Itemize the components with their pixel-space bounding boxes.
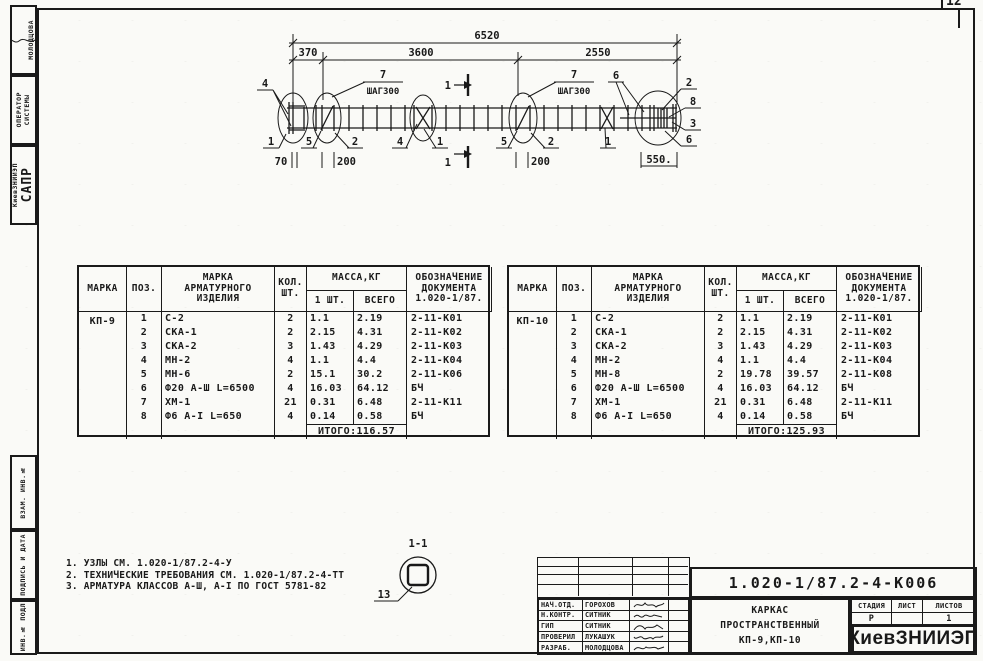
table-cell: 15.1 bbox=[307, 368, 354, 382]
table-filler bbox=[557, 424, 592, 439]
table-cell: 3 bbox=[275, 340, 307, 354]
marka-value: КП-9 bbox=[79, 312, 127, 439]
sig-date bbox=[669, 632, 688, 643]
table-cell: 6 bbox=[127, 382, 162, 396]
table-cell: 16.03 bbox=[307, 382, 354, 396]
svg-text:4: 4 bbox=[397, 136, 403, 148]
doc-number-cell: 1.020-1/87.2-4-К006 bbox=[690, 567, 977, 598]
sig-role: ПРОВЕРИЛ bbox=[539, 632, 583, 643]
svg-text:ШАГ300: ШАГ300 bbox=[558, 87, 591, 97]
col-header-marka: МАРКА bbox=[509, 267, 557, 312]
table-cell: 2 bbox=[705, 368, 737, 382]
table-cell: 1.1 bbox=[737, 354, 784, 368]
table-cell: ХМ-1 bbox=[162, 396, 275, 410]
table-cell: 2-11-К02 bbox=[837, 326, 922, 340]
svg-text:1-1: 1-1 bbox=[409, 538, 428, 550]
table-cell: 0.14 bbox=[307, 410, 354, 424]
table-cell: БЧ bbox=[407, 382, 492, 396]
table-cell: Ф20 А-Ш L=6500 bbox=[162, 382, 275, 396]
svg-text:2550: 2550 bbox=[585, 47, 610, 59]
table-cell: 64.12 bbox=[354, 382, 407, 396]
table-cell: 2-11-К11 bbox=[407, 396, 492, 410]
table-cell: 16.03 bbox=[737, 382, 784, 396]
table-cell: 2-11-К01 bbox=[837, 312, 922, 326]
sheets-value: 1 bbox=[923, 613, 975, 624]
table-cell: 1.43 bbox=[737, 340, 784, 354]
corner-divider bbox=[958, 8, 960, 28]
table-cell: 2-11-К03 bbox=[837, 340, 922, 354]
table-cell: 1.1 bbox=[307, 312, 354, 326]
col-header-qty: КОЛ. ШТ. bbox=[705, 267, 737, 312]
organization-name: КиевЗНИИЭП bbox=[852, 625, 975, 653]
table-cell: 6.48 bbox=[354, 396, 407, 410]
table-cell: 2-11-К06 bbox=[407, 368, 492, 382]
table-cell: 0.14 bbox=[737, 410, 784, 424]
table-filler bbox=[275, 424, 307, 439]
table-cell: МН-8 bbox=[592, 368, 705, 382]
table-total: ИТОГО:125.93 bbox=[737, 424, 837, 439]
table-cell: 21 bbox=[275, 396, 307, 410]
col-header-doc: ОБОЗНАЧЕНИЕ ДОКУМЕНТА 1.020-1/87. bbox=[837, 267, 922, 312]
table-cell: 4.31 bbox=[354, 326, 407, 340]
table-cell: 0.58 bbox=[784, 410, 837, 424]
table-cell: 2-11-К08 bbox=[837, 368, 922, 382]
table-cell: 2.19 bbox=[784, 312, 837, 326]
sheet-label: ЛИСТ bbox=[892, 600, 923, 612]
table-cell: 1 bbox=[127, 312, 162, 326]
sig-role: РАЗРАБ. bbox=[539, 642, 583, 653]
table-cell: 2 bbox=[705, 312, 737, 326]
table-cell: 2-11-К04 bbox=[837, 354, 922, 368]
bottom-dimensions: 70 200 200 550. bbox=[275, 152, 677, 168]
table-filler bbox=[705, 424, 737, 439]
col-header-all: ВСЕГО bbox=[354, 291, 407, 312]
spec-table-kp10: МАРКА ПОЗ. МАРКА АРМАТУРНОГО ИЗДЕЛИЯ КОЛ… bbox=[507, 265, 920, 437]
table-cell: 3 bbox=[127, 340, 162, 354]
corner-divider bbox=[941, 0, 943, 9]
signature bbox=[630, 611, 669, 622]
table-cell: 2 bbox=[705, 326, 737, 340]
svg-text:1: 1 bbox=[268, 136, 274, 148]
sig-date bbox=[669, 611, 688, 622]
svg-text:5: 5 bbox=[306, 136, 312, 148]
table-cell: 6 bbox=[557, 382, 592, 396]
table-total: ИТОГО:116.57 bbox=[307, 424, 407, 439]
signature bbox=[10, 33, 37, 47]
sig-name: ГОРОХОВ bbox=[583, 600, 630, 611]
table-cell: С-2 bbox=[162, 312, 275, 326]
table-cell: БЧ bbox=[407, 410, 492, 424]
table-cell: СКА-2 bbox=[592, 340, 705, 354]
note-line: 2. ТЕХНИЧЕСКИЕ ТРЕБОВАНИЯ СМ. 1.020-1/87… bbox=[66, 570, 406, 582]
col-header-one: 1 ШТ. bbox=[737, 291, 784, 312]
table-cell: 8 bbox=[127, 410, 162, 424]
col-header-one: 1 ШТ. bbox=[307, 291, 354, 312]
svg-text:6520: 6520 bbox=[474, 30, 499, 42]
table-cell: 1 bbox=[557, 312, 592, 326]
margin-field-podpis: ПОДПИСЬ И ДАТА bbox=[10, 530, 37, 600]
drawing-sheet: 12 МОЛОДЦОВА ОПЕРАТОР СИСТЕМЫ САПР КиевЗ… bbox=[0, 0, 983, 661]
signature bbox=[630, 642, 669, 653]
stage-sheet-section: СТАДИЯ ЛИСТ ЛИСТОВ Р 1 КиевЗНИИЭП bbox=[850, 598, 977, 655]
beam-body bbox=[287, 102, 677, 134]
margin-field-inv: ИНВ.№ ПОДЛ bbox=[10, 600, 37, 655]
sig-name: СИТНИК bbox=[583, 621, 630, 632]
sig-name: МОЛОДЦОВА bbox=[583, 642, 630, 653]
table-cell: МН-2 bbox=[162, 354, 275, 368]
svg-text:1: 1 bbox=[445, 157, 451, 169]
svg-text:1: 1 bbox=[437, 136, 443, 148]
table-cell: 1.1 bbox=[737, 312, 784, 326]
svg-text:200: 200 bbox=[337, 156, 356, 168]
table-filler bbox=[592, 424, 705, 439]
table-cell: 2.15 bbox=[737, 326, 784, 340]
sig-role: ГИП bbox=[539, 621, 583, 632]
margin-role-cell: ОПЕРАТОР СИСТЕМЫ bbox=[10, 75, 37, 145]
col-header-item: МАРКА АРМАТУРНОГО ИЗДЕЛИЯ bbox=[592, 267, 705, 312]
drawing-title: КАРКАС ПРОСТРАНСТВЕННЫЙ КП-9,КП-10 bbox=[690, 598, 850, 655]
table-cell: 2 bbox=[275, 312, 307, 326]
svg-text:8: 8 bbox=[690, 96, 696, 108]
table-cell: 1.1 bbox=[307, 354, 354, 368]
table-cell: 0.58 bbox=[354, 410, 407, 424]
svg-text:6: 6 bbox=[613, 70, 619, 82]
table-cell: 3 bbox=[705, 340, 737, 354]
table-cell: 2-11-К03 bbox=[407, 340, 492, 354]
svg-text:550.: 550. bbox=[646, 154, 671, 166]
table-cell: 4 bbox=[705, 382, 737, 396]
section-detail-1-1: 1-1 13 bbox=[360, 533, 470, 627]
sig-date bbox=[669, 642, 688, 653]
svg-text:370: 370 bbox=[299, 47, 318, 59]
table-cell: 0.31 bbox=[737, 396, 784, 410]
table-filler bbox=[127, 424, 162, 439]
table-cell: 4 bbox=[705, 410, 737, 424]
table-cell: 4.4 bbox=[784, 354, 837, 368]
table-cell: ХМ-1 bbox=[592, 396, 705, 410]
signature bbox=[630, 600, 669, 611]
table-cell: 2 bbox=[275, 368, 307, 382]
svg-text:200: 200 bbox=[531, 156, 550, 168]
svg-text:5: 5 bbox=[501, 136, 507, 148]
table-cell: 4 bbox=[705, 354, 737, 368]
table-cell: 39.57 bbox=[784, 368, 837, 382]
table-cell: СКА-2 bbox=[162, 340, 275, 354]
marka-value: КП-10 bbox=[509, 312, 557, 439]
svg-text:1: 1 bbox=[445, 80, 451, 92]
sheet-value bbox=[892, 613, 923, 624]
doc-number: 1.020-1/87.2-4-К006 bbox=[729, 574, 939, 592]
col-header-qty: КОЛ. ШТ. bbox=[275, 267, 307, 312]
table-cell: 4 bbox=[275, 354, 307, 368]
table-cell: 21 bbox=[705, 396, 737, 410]
sig-role: НАЧ.ОТД. bbox=[539, 600, 583, 611]
beam-elevation-drawing: 6520 370 3600 2550 bbox=[225, 18, 750, 192]
margin-designer-cell: МОЛОДЦОВА bbox=[10, 5, 37, 75]
table-cell: Ф20 А-Ш L=6500 bbox=[592, 382, 705, 396]
sig-name: СИТНИК bbox=[583, 611, 630, 622]
sig-date bbox=[669, 600, 688, 611]
svg-text:3600: 3600 bbox=[408, 47, 433, 59]
col-header-marka: МАРКА bbox=[79, 267, 127, 312]
table-cell: 5 bbox=[127, 368, 162, 382]
table-cell: 5 bbox=[557, 368, 592, 382]
dimension-lines: 6520 370 3600 2550 bbox=[289, 30, 681, 104]
stage-value: Р bbox=[852, 613, 892, 624]
table-cell: 8 bbox=[557, 410, 592, 424]
col-header-item: МАРКА АРМАТУРНОГО ИЗДЕЛИЯ bbox=[162, 267, 275, 312]
svg-text:ШАГ300: ШАГ300 bbox=[367, 87, 400, 97]
table-cell: 6.48 bbox=[784, 396, 837, 410]
table-cell: 4.4 bbox=[354, 354, 407, 368]
svg-text:6: 6 bbox=[686, 134, 692, 146]
table-cell: 0.31 bbox=[307, 396, 354, 410]
margin-org-big: САПР bbox=[20, 167, 36, 202]
table-cell: 2-11-К01 bbox=[407, 312, 492, 326]
note-line: 3. АРМАТУРА КЛАССОВ А-Ш, А-I ПО ГОСТ 578… bbox=[66, 581, 406, 593]
table-cell: 4 bbox=[127, 354, 162, 368]
table-cell: 30.2 bbox=[354, 368, 407, 382]
sig-role: Н.КОНТР. bbox=[539, 611, 583, 622]
table-cell: 64.12 bbox=[784, 382, 837, 396]
table-cell: 7 bbox=[557, 396, 592, 410]
margin-role-label: ОПЕРАТОР СИСТЕМЫ bbox=[15, 92, 31, 127]
signature bbox=[630, 621, 669, 632]
svg-text:7: 7 bbox=[571, 69, 577, 81]
margin-org-small: КиевЗНИИЭП bbox=[11, 163, 19, 207]
sig-date bbox=[669, 621, 688, 632]
table-cell: 2 bbox=[557, 326, 592, 340]
svg-text:2: 2 bbox=[686, 77, 692, 89]
svg-text:2: 2 bbox=[548, 136, 554, 148]
table-filler bbox=[162, 424, 275, 439]
sig-name: ЛУКАШУК bbox=[583, 632, 630, 643]
svg-text:3: 3 bbox=[690, 118, 696, 130]
table-cell: 2 bbox=[127, 326, 162, 340]
spec-table-kp9: МАРКА ПОЗ. МАРКА АРМАТУРНОГО ИЗДЕЛИЯ КОЛ… bbox=[77, 265, 490, 437]
table-cell: 4 bbox=[275, 410, 307, 424]
stage-label: СТАДИЯ bbox=[852, 600, 892, 612]
notes-block: 1. УЗЛЫ СМ. 1.020-1/87.2-4-У 2. ТЕХНИЧЕС… bbox=[66, 558, 406, 593]
sheets-label: ЛИСТОВ bbox=[923, 600, 975, 612]
table-cell: 4.29 bbox=[784, 340, 837, 354]
table-cell: 4 bbox=[275, 382, 307, 396]
svg-text:13: 13 bbox=[378, 589, 391, 601]
table-cell: 2.19 bbox=[354, 312, 407, 326]
signature-rows: НАЧ.ОТД. ГОРОХОВ Н.КОНТР. СИТНИК ГИП СИТ… bbox=[537, 598, 690, 655]
table-cell: СКА-1 bbox=[162, 326, 275, 340]
table-cell: 2 bbox=[275, 326, 307, 340]
table-cell: 2.15 bbox=[307, 326, 354, 340]
note-line: 1. УЗЛЫ СМ. 1.020-1/87.2-4-У bbox=[66, 558, 406, 570]
table-cell: С-2 bbox=[592, 312, 705, 326]
table-cell: БЧ bbox=[837, 410, 922, 424]
table-cell: 2-11-К02 bbox=[407, 326, 492, 340]
table-cell: 4.29 bbox=[354, 340, 407, 354]
table-cell: СКА-1 bbox=[592, 326, 705, 340]
table-cell: 3 bbox=[557, 340, 592, 354]
revision-grid bbox=[537, 557, 690, 598]
table-cell: 19.78 bbox=[737, 368, 784, 382]
svg-text:4: 4 bbox=[262, 78, 268, 90]
table-cell: Ф6 А-I L=650 bbox=[162, 410, 275, 424]
table-cell: МН-2 bbox=[592, 354, 705, 368]
svg-text:70: 70 bbox=[275, 156, 288, 168]
col-header-all: ВСЕГО bbox=[784, 291, 837, 312]
table-cell: 2-11-К11 bbox=[837, 396, 922, 410]
signature bbox=[630, 632, 669, 643]
table-cell: 1.43 bbox=[307, 340, 354, 354]
table-cell: БЧ bbox=[837, 382, 922, 396]
title-block: 1.020-1/87.2-4-К006 НАЧ.ОТД. ГОРОХОВ Н.К… bbox=[537, 557, 977, 655]
margin-org-cell: САПР КиевЗНИИЭП bbox=[10, 145, 37, 225]
table-cell: МН-6 bbox=[162, 368, 275, 382]
svg-text:2: 2 bbox=[352, 136, 358, 148]
col-header-mass: МАССА,КГ bbox=[737, 267, 837, 291]
table-cell: Ф6 А-I L=650 bbox=[592, 410, 705, 424]
col-header-poz: ПОЗ. bbox=[557, 267, 592, 312]
table-cell: 4.31 bbox=[784, 326, 837, 340]
table-cell: 2-11-К04 bbox=[407, 354, 492, 368]
svg-text:7: 7 bbox=[380, 69, 386, 81]
table-cell: 4 bbox=[557, 354, 592, 368]
section-marks: 1 1 bbox=[445, 74, 472, 169]
col-header-doc: ОБОЗНАЧЕНИЕ ДОКУМЕНТА 1.020-1/87. bbox=[407, 267, 492, 312]
table-cell: 7 bbox=[127, 396, 162, 410]
col-header-mass: МАССА,КГ bbox=[307, 267, 407, 291]
margin-field-vzam: ВЗАМ. ИНВ.№ bbox=[10, 455, 37, 530]
col-header-poz: ПОЗ. bbox=[127, 267, 162, 312]
